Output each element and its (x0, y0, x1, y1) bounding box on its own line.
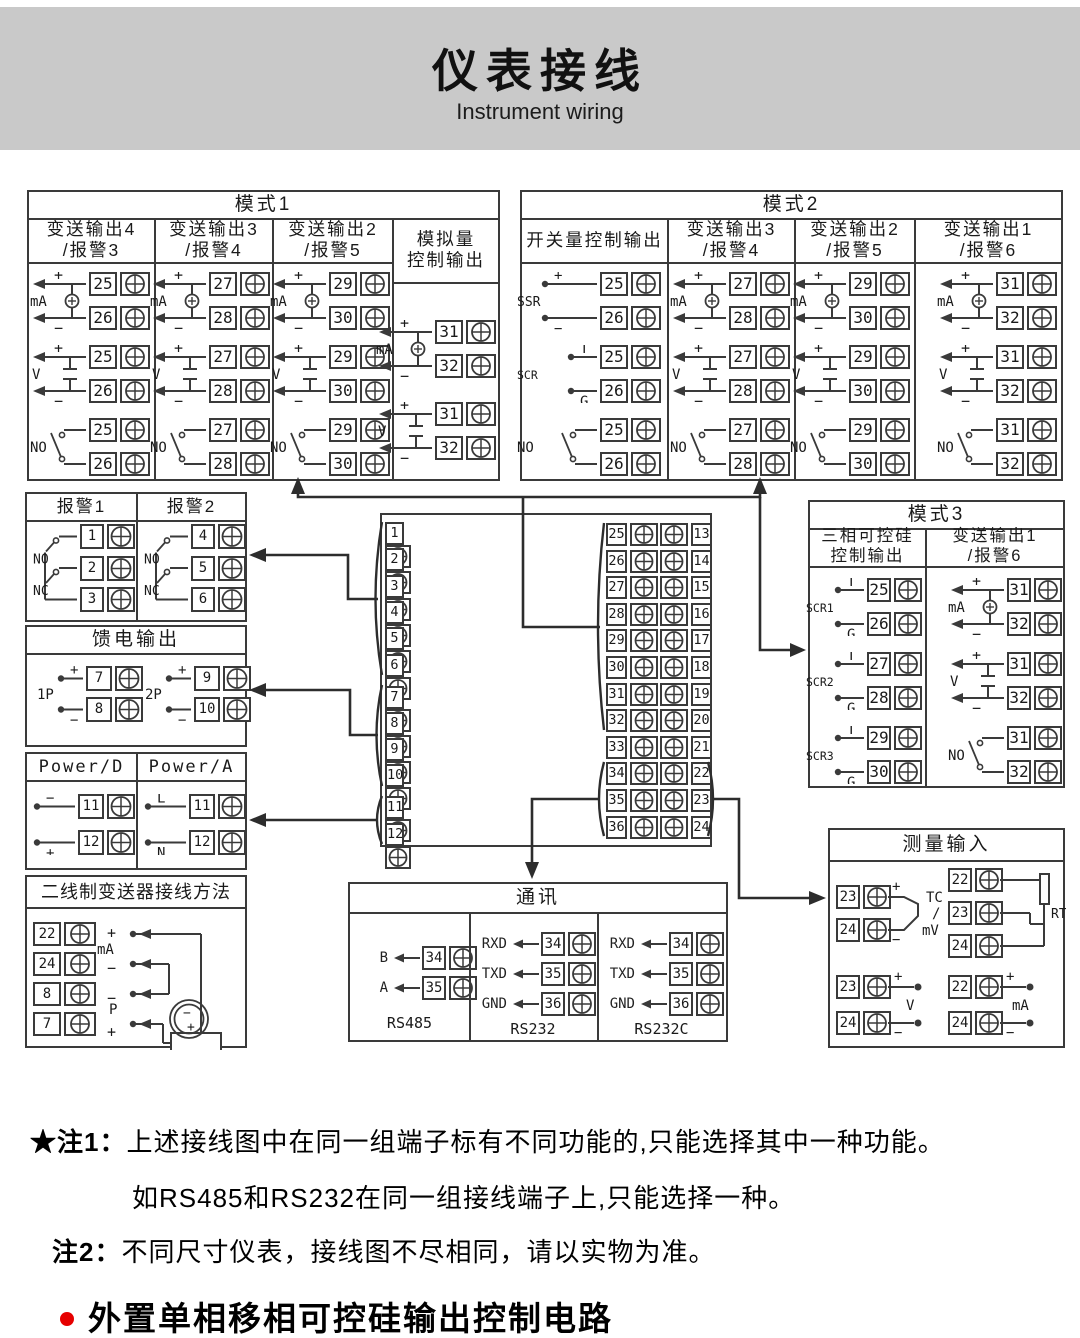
box-title: 通讯 (350, 884, 726, 914)
terminal: 25 (89, 272, 150, 296)
feed-output-box: 馈电输出+−1P 7 8 +−2P 9 10 (25, 625, 247, 747)
terminal-group: TGSCR1 25 26 (806, 578, 922, 636)
block-terminal-row: 26 14 (606, 550, 712, 573)
wiring-symbol (509, 998, 539, 1010)
terminal-number: 16 (691, 603, 712, 626)
wiring-symbol (637, 968, 667, 980)
wiring-symbol: RTD (1000, 860, 1066, 964)
alarm-column: 报警2NONC 4 5 6 (136, 494, 245, 620)
terminal-number: 23 (836, 885, 860, 909)
svg-text:−: − (294, 392, 303, 403)
terminal-number: 13 (691, 523, 712, 546)
terminal: 32 (435, 436, 496, 460)
terminal: 24 (948, 934, 1003, 958)
terminal-group: +−V 25 26 (30, 345, 150, 403)
terminal: 7 (33, 1012, 96, 1036)
block-terminal-row: 34 22 (606, 762, 712, 785)
wiring-symbol: NO (30, 418, 86, 476)
terminal: 28 (867, 686, 922, 710)
terminal: 26 (89, 379, 150, 403)
terminal-number: 31 (996, 418, 1024, 442)
screw-icon (660, 550, 688, 573)
terminal-number: 34 (606, 762, 627, 785)
terminal-number: 28 (729, 306, 757, 330)
box-title: 模式1 (29, 192, 498, 220)
mode-column: 三相可控硅控制输出TGSCR1 25 26 TGSCR2 27 28 TGSCR… (810, 528, 925, 786)
terminal-number: 28 (209, 379, 237, 403)
screw-icon (631, 306, 661, 330)
column-header: 变送输出3/报警4 (156, 218, 272, 264)
terminal-number: 33 (606, 736, 627, 759)
column-header: 开关量控制输出 (522, 218, 667, 264)
block-terminal-row: 27 15 (606, 576, 712, 599)
terminal-number: 3 (80, 587, 104, 612)
terminal-number: 30 (329, 452, 357, 476)
terminal: 27 (209, 418, 270, 442)
screw-icon (863, 1011, 891, 1035)
terminal-number: 23 (836, 975, 860, 999)
svg-text:mA: mA (376, 342, 393, 358)
screw-icon (218, 830, 246, 855)
svg-text:+: + (961, 272, 970, 284)
screw-icon (660, 709, 688, 732)
terminal-number: 22 (691, 762, 712, 785)
terminal: 12 (78, 830, 135, 855)
terminal-group: +−2P 9 10 (145, 666, 251, 722)
note1-line2: 如RS485和RS232在同一组接线端子上,只能选择一种。 (132, 1178, 795, 1215)
terminal: 6 (191, 587, 246, 612)
comm-signal-label: B (354, 950, 388, 966)
svg-text:+: + (54, 345, 63, 357)
screw-icon (975, 868, 1003, 892)
terminal-number: 5 (191, 556, 215, 581)
terminal-number: 24 (836, 1011, 860, 1035)
terminal-number: 30 (849, 306, 877, 330)
terminal: 3 (80, 587, 135, 612)
svg-text:+: + (814, 272, 823, 284)
box-title: 模式3 (810, 502, 1063, 530)
terminal: 25 (600, 418, 661, 442)
svg-text:SCR1: SCR1 (806, 601, 834, 615)
screw-icon (631, 345, 661, 369)
terminal: 8 (86, 697, 143, 722)
terminal-group: +−mA 31 32 (376, 320, 496, 378)
terminal-number: 31 (996, 345, 1024, 369)
wiring-symbol (637, 938, 667, 950)
terminal: 36 (669, 992, 724, 1016)
svg-text:−: − (892, 932, 900, 948)
mode2-box: 模式2开关量控制输出+−SSR 25 26 TGSCR 25 26 NO 25 … (520, 190, 1063, 481)
svg-text:mA: mA (97, 942, 114, 958)
column-header: 报警1 (27, 494, 136, 522)
terminal-group: +−V 31 32 (376, 402, 496, 460)
terminal: 28 (209, 452, 270, 476)
terminal: 28 (729, 306, 790, 330)
comm-caption: RS485 (350, 1014, 469, 1032)
terminal: 27 (729, 345, 790, 369)
terminal-number: 15 (691, 576, 712, 599)
comm-row: A 35 (354, 976, 477, 1000)
box-title: 馈电输出 (27, 627, 245, 655)
screw-icon (975, 975, 1003, 999)
terminal: 29 (849, 418, 910, 442)
terminal-number: 2 (385, 548, 404, 571)
svg-text:−: − (961, 319, 970, 330)
measure-input-box: 测量输入 23 24 22 23 24 23 24 22 24 +−TC/mVR… (828, 828, 1065, 1048)
comm-row: RXD 34 (473, 932, 596, 956)
terminal-number: 4 (191, 524, 215, 549)
screw-icon (863, 885, 891, 909)
wiring-symbol: +−2P (145, 666, 191, 722)
terminal: 9 (194, 666, 251, 691)
wiring-symbol: NO (670, 418, 726, 476)
terminal: 25 (89, 345, 150, 369)
terminal: 10 (194, 697, 251, 722)
svg-text:NO: NO (150, 440, 167, 456)
wiring-symbol (637, 998, 667, 1010)
terminal-number: 6 (191, 587, 215, 612)
svg-text:+: + (894, 969, 902, 985)
svg-text:+: + (1006, 969, 1014, 985)
terminal: 25 (600, 272, 661, 296)
mode-column: 变送输出3/报警4+−mA 27 28 +−V 27 28 NO 27 28 (154, 218, 272, 479)
power-box: Power/D−+ 11 12 Power/ALN 11 12 (25, 752, 247, 870)
svg-text:NO: NO (30, 440, 47, 456)
screw-icon (223, 697, 251, 722)
screw-icon (120, 379, 150, 403)
wiring-symbol: TGSCR2 (806, 652, 864, 710)
terminal-number: 27 (729, 272, 757, 296)
terminal: 32 (996, 306, 1057, 330)
terminal: 25 (89, 418, 150, 442)
svg-text:/: / (932, 906, 940, 922)
terminal-group: NO 25 26 (517, 418, 661, 476)
svg-text:−: − (294, 319, 303, 330)
terminal-number: 28 (729, 379, 757, 403)
column-header: Power/D (27, 754, 136, 782)
terminal-group: NO 27 28 (670, 418, 790, 476)
svg-text:−: − (400, 449, 409, 460)
screw-icon (630, 603, 658, 626)
terminal-number: 26 (600, 379, 628, 403)
svg-text:TC: TC (926, 890, 943, 906)
wiring-symbol: +−mA (150, 272, 206, 330)
wiring-symbol (509, 968, 539, 980)
terminal: 31 (1007, 578, 1062, 602)
terminal: 26 (600, 452, 661, 476)
svg-text:+: + (961, 345, 970, 357)
screw-icon (568, 932, 596, 956)
svg-text:+: + (294, 345, 303, 357)
column-header: 变送输出2/报警5 (274, 218, 392, 264)
terminal: 23 (836, 885, 891, 909)
comm-row: GND 36 (473, 992, 596, 1016)
terminal: 28 (209, 306, 270, 330)
terminal-number: 21 (691, 736, 712, 759)
terminal-number: 29 (329, 272, 357, 296)
screw-icon (360, 379, 390, 403)
column-header: 三相可控硅控制输出 (810, 528, 925, 568)
terminal-group: NO 29 30 (790, 418, 910, 476)
terminal-number: 11 (78, 794, 104, 819)
terminal: 29 (329, 272, 390, 296)
column-header: 变送输出3/报警4 (669, 218, 794, 264)
terminal-number: 25 (600, 418, 628, 442)
comm-signal-label: TXD (473, 966, 507, 982)
two-wire-transmitter-box: 二线制变送器接线方法 22 24 8 7 +mA−−P+−+ (25, 875, 247, 1048)
terminal-number: 32 (996, 379, 1024, 403)
page-subtitle: Instrument wiring (0, 99, 1080, 125)
svg-text:mV: mV (922, 923, 939, 939)
svg-text:RTD: RTD (1051, 907, 1066, 922)
wiring-symbol: +−V (790, 345, 846, 403)
screw-icon (660, 816, 688, 839)
terminal: 27 (209, 345, 270, 369)
svg-text:mA: mA (150, 294, 167, 310)
screw-icon (880, 306, 910, 330)
screw-icon (863, 918, 891, 942)
svg-text:−: − (174, 319, 183, 330)
wiring-symbol: +−V (30, 345, 86, 403)
wiring-symbol (390, 982, 420, 994)
terminal: 35 (669, 962, 724, 986)
wiring-symbol: +mA− (1000, 968, 1056, 1040)
screw-icon (115, 697, 143, 722)
mode-column: 变送输出2/报警5+−mA 29 30 +−V 29 30 NO 29 30 (794, 218, 914, 479)
svg-text:L: L (157, 794, 165, 807)
svg-text:T: T (847, 652, 856, 664)
terminal-number: 36 (541, 992, 565, 1016)
wiring-symbol: NO (937, 418, 993, 476)
block-terminal-row: 35 23 (606, 789, 712, 812)
screw-icon (385, 846, 411, 869)
column-header: 变送输出2/报警5 (796, 218, 914, 264)
wiring-symbol: +−V (670, 345, 726, 403)
terminal-number: 6 (385, 654, 404, 677)
terminal: 12 (189, 830, 246, 855)
screw-icon (894, 578, 922, 602)
wiring-symbol: NO (517, 418, 597, 476)
terminal: 32 (996, 379, 1057, 403)
terminal: 27 (209, 272, 270, 296)
comm-signal-label: RXD (601, 936, 635, 952)
screw-icon (894, 612, 922, 636)
screw-icon (880, 379, 910, 403)
terminal-number: 29 (849, 345, 877, 369)
screw-icon (630, 736, 658, 759)
terminal-group: +−1P 7 8 (37, 666, 143, 722)
page-title: 仪表接线 (0, 35, 1080, 101)
mode-column: 模拟量控制输出+−mA 31 32 +−V 31 32 (392, 218, 498, 479)
terminal-number: 26 (600, 452, 628, 476)
wiring-symbol: +−V (270, 345, 326, 403)
comm-caption: RS232C (597, 1020, 726, 1038)
terminal-group: +−mA 31 32 (937, 272, 1057, 330)
screw-icon (64, 922, 96, 946)
terminal-number: 36 (669, 992, 693, 1016)
terminal: 30 (867, 760, 922, 784)
rtd-symbol: RTD (1000, 860, 1066, 964)
svg-text:G: G (847, 775, 855, 784)
terminal: 28 (209, 379, 270, 403)
comm-signal-label: RXD (473, 936, 507, 952)
wiring-symbol: +mA−−P+−+ (93, 907, 249, 1050)
svg-text:V: V (378, 424, 387, 440)
terminal-group: +−mA 29 30 (270, 272, 390, 330)
terminal-number: 32 (996, 452, 1024, 476)
terminal: 4 (191, 524, 246, 549)
alarm-box: 报警1NONC 1 2 3 报警2NONC 4 5 6 (25, 492, 247, 622)
screw-icon (660, 576, 688, 599)
svg-text:−: − (400, 367, 409, 378)
terminal-number: 32 (1007, 760, 1031, 784)
mode-column: 开关量控制输出+−SSR 25 26 TGSCR 25 26 NO 25 26 (522, 218, 667, 479)
screw-icon (1027, 272, 1057, 296)
comm-row: TXD 35 (473, 962, 596, 986)
wiring-symbol: +−V (376, 402, 432, 460)
comm-signal-label: TXD (601, 966, 635, 982)
terminal-number: 24 (948, 1011, 972, 1035)
screw-icon (880, 345, 910, 369)
note1-text: 上述接线图中在同一组端子标有不同功能的,只能选择其中一种功能。 (126, 1127, 944, 1157)
screw-icon (760, 418, 790, 442)
terminal-number: 26 (600, 306, 628, 330)
terminal-number: 30 (329, 379, 357, 403)
screw-icon (660, 603, 688, 626)
screw-icon (240, 272, 270, 296)
svg-text:V: V (272, 367, 281, 383)
terminal-group: NONC 4 5 6 (142, 524, 246, 612)
screw-icon (466, 402, 496, 426)
screw-icon (631, 418, 661, 442)
terminal: 34 (669, 932, 724, 956)
terminal-number: 30 (849, 452, 877, 476)
block-terminal-row: 29 17 (606, 629, 712, 652)
terminal: 1 (80, 524, 135, 549)
screw-icon (218, 587, 246, 612)
note1: ★注1：上述接线图中在同一组端子标有不同功能的,只能选择其中一种功能。 (30, 1122, 945, 1159)
terminal: 31 (435, 320, 496, 344)
svg-text:1P: 1P (37, 687, 54, 703)
screw-icon (568, 992, 596, 1016)
terminal-number: 12 (78, 830, 104, 855)
box-title: 模式2 (522, 192, 1061, 220)
svg-text:+: + (554, 272, 562, 284)
terminal: 27 (867, 652, 922, 676)
svg-text:2P: 2P (145, 687, 162, 703)
terminal-number: 25 (867, 578, 891, 602)
svg-text:G: G (847, 701, 855, 710)
svg-text:+: + (70, 666, 78, 679)
terminal-number: 35 (541, 962, 565, 986)
terminal: 31 (996, 345, 1057, 369)
terminal: 24 (948, 1011, 1003, 1035)
svg-text:mA: mA (30, 294, 47, 310)
terminal-block: 1 2 3 4 5 6 7 8 9 10 11 12 25 1326 1427 … (380, 513, 712, 847)
terminal-number: 26 (89, 306, 117, 330)
terminal-group: +−V 27 28 (670, 345, 790, 403)
terminal-number: 32 (996, 306, 1024, 330)
terminal-number: 30 (329, 306, 357, 330)
screw-icon (660, 523, 688, 546)
terminal-group: NONC 1 2 3 (31, 524, 135, 612)
screw-icon (863, 975, 891, 999)
svg-text:+: + (972, 578, 981, 590)
screw-icon (1034, 578, 1062, 602)
wiring-symbol: +−mA (937, 272, 993, 330)
screw-icon (630, 629, 658, 652)
terminal-number: 9 (385, 738, 404, 761)
screw-icon (240, 306, 270, 330)
terminal: 23 (836, 975, 891, 999)
svg-text:+: + (174, 272, 183, 284)
terminal-number: 28 (867, 686, 891, 710)
terminal: 27 (729, 272, 790, 296)
terminal-number: 32 (606, 709, 627, 732)
terminal-number: 31 (1007, 578, 1031, 602)
terminal-number: 10 (385, 764, 404, 787)
terminal-number: 27 (606, 576, 627, 599)
terminal: 31 (435, 402, 496, 426)
screw-icon (120, 452, 150, 476)
bullet-icon (60, 1312, 74, 1326)
svg-text:NO: NO (33, 553, 49, 568)
terminal: 32 (1007, 686, 1062, 710)
svg-text:NO: NO (948, 748, 965, 764)
terminal-number: 8 (33, 982, 61, 1006)
screw-icon (696, 962, 724, 986)
terminal-number: 27 (209, 418, 237, 442)
screw-icon (894, 726, 922, 750)
svg-text:+: + (107, 1023, 116, 1041)
terminal-number: 31 (606, 683, 627, 706)
screw-icon (466, 320, 496, 344)
svg-text:NO: NO (790, 440, 807, 456)
terminal: 11 (78, 794, 135, 819)
svg-text:+: + (892, 879, 900, 895)
svg-text:T: T (847, 578, 856, 590)
wiring-symbol: +−V (948, 652, 1004, 710)
terminal-number: 28 (729, 452, 757, 476)
svg-text:+: + (46, 846, 54, 856)
svg-text:+: + (400, 320, 409, 332)
terminal-number: 27 (209, 345, 237, 369)
svg-text:N: N (157, 846, 165, 856)
terminal-number: 25 (600, 272, 628, 296)
screw-icon (630, 683, 658, 706)
terminal-number: 29 (849, 272, 877, 296)
terminal: 24 (836, 1011, 891, 1035)
svg-text:mA: mA (670, 294, 687, 310)
terminal: 31 (1007, 652, 1062, 676)
mode-column: 变送输出1/报警6+−mA 31 32 +−V 31 32 NO 31 32 (925, 528, 1063, 786)
screw-icon (660, 656, 688, 679)
terminal-number: 30 (606, 656, 627, 679)
terminal: 23 (948, 901, 1003, 925)
page-header: 仪表接线 Instrument wiring (0, 7, 1080, 150)
svg-text:V: V (672, 367, 681, 383)
communication-box: 通讯B 34 A 35 RS485RXD 34 TXD 35 GND 36 RS… (348, 882, 728, 1042)
screw-icon (107, 587, 135, 612)
screw-icon (107, 556, 135, 581)
terminal: 31 (1007, 726, 1062, 750)
svg-text:−: − (694, 392, 703, 403)
terminal-number: 7 (385, 686, 404, 709)
wiring-symbol: NONC (142, 524, 188, 612)
svg-text:+: + (972, 652, 981, 664)
note2: 注2：不同尺寸仪表，接线图不尽相同，请以实物为准。 (52, 1232, 715, 1269)
screw-icon (120, 306, 150, 330)
